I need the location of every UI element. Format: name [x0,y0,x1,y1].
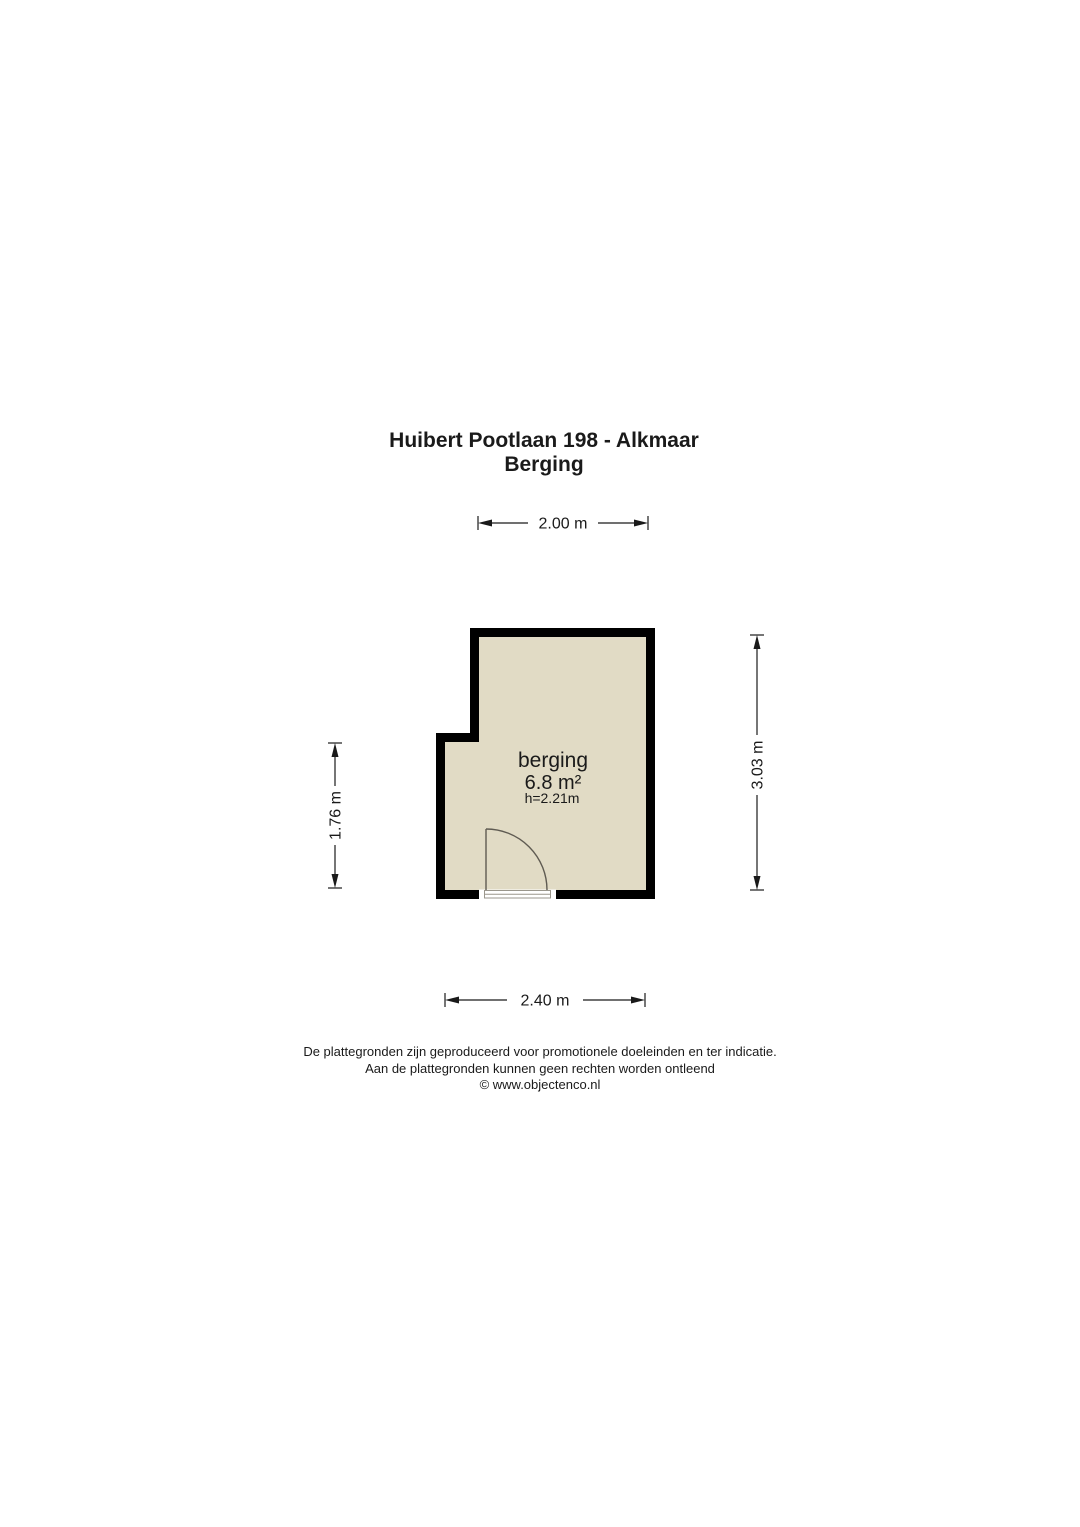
dimension-right-label: 3.03 m [750,741,767,790]
footer-line-1: De plattegronden zijn geproduceerd voor … [0,1044,1080,1061]
dimension-bottom-label: 2.40 m [521,993,570,1010]
footer-disclaimer: De plattegronden zijn geproduceerd voor … [0,1044,1080,1094]
dimension-top-label: 2.00 m [539,516,588,533]
footer-credit: © www.objectenco.nl [0,1077,1080,1094]
dimension-bottom: 2.40 m [445,993,645,1010]
dimension-left: 1.76 m [328,743,345,888]
footer-line-2: Aan de plattegronden kunnen geen rechten… [0,1061,1080,1078]
dimension-right: 3.03 m [750,635,767,890]
room-name-label: berging [518,749,588,772]
floorplan-drawing: 2.00 m 2.40 m 1.76 m [0,0,1080,1527]
room-ceiling-height-label: h=2.21m [525,790,580,806]
dimension-left-label: 1.76 m [328,791,345,840]
floorplan-page: Huibert Pootlaan 198 - Alkmaar Berging 2… [0,0,1080,1527]
dimension-top: 2.00 m [478,516,648,533]
